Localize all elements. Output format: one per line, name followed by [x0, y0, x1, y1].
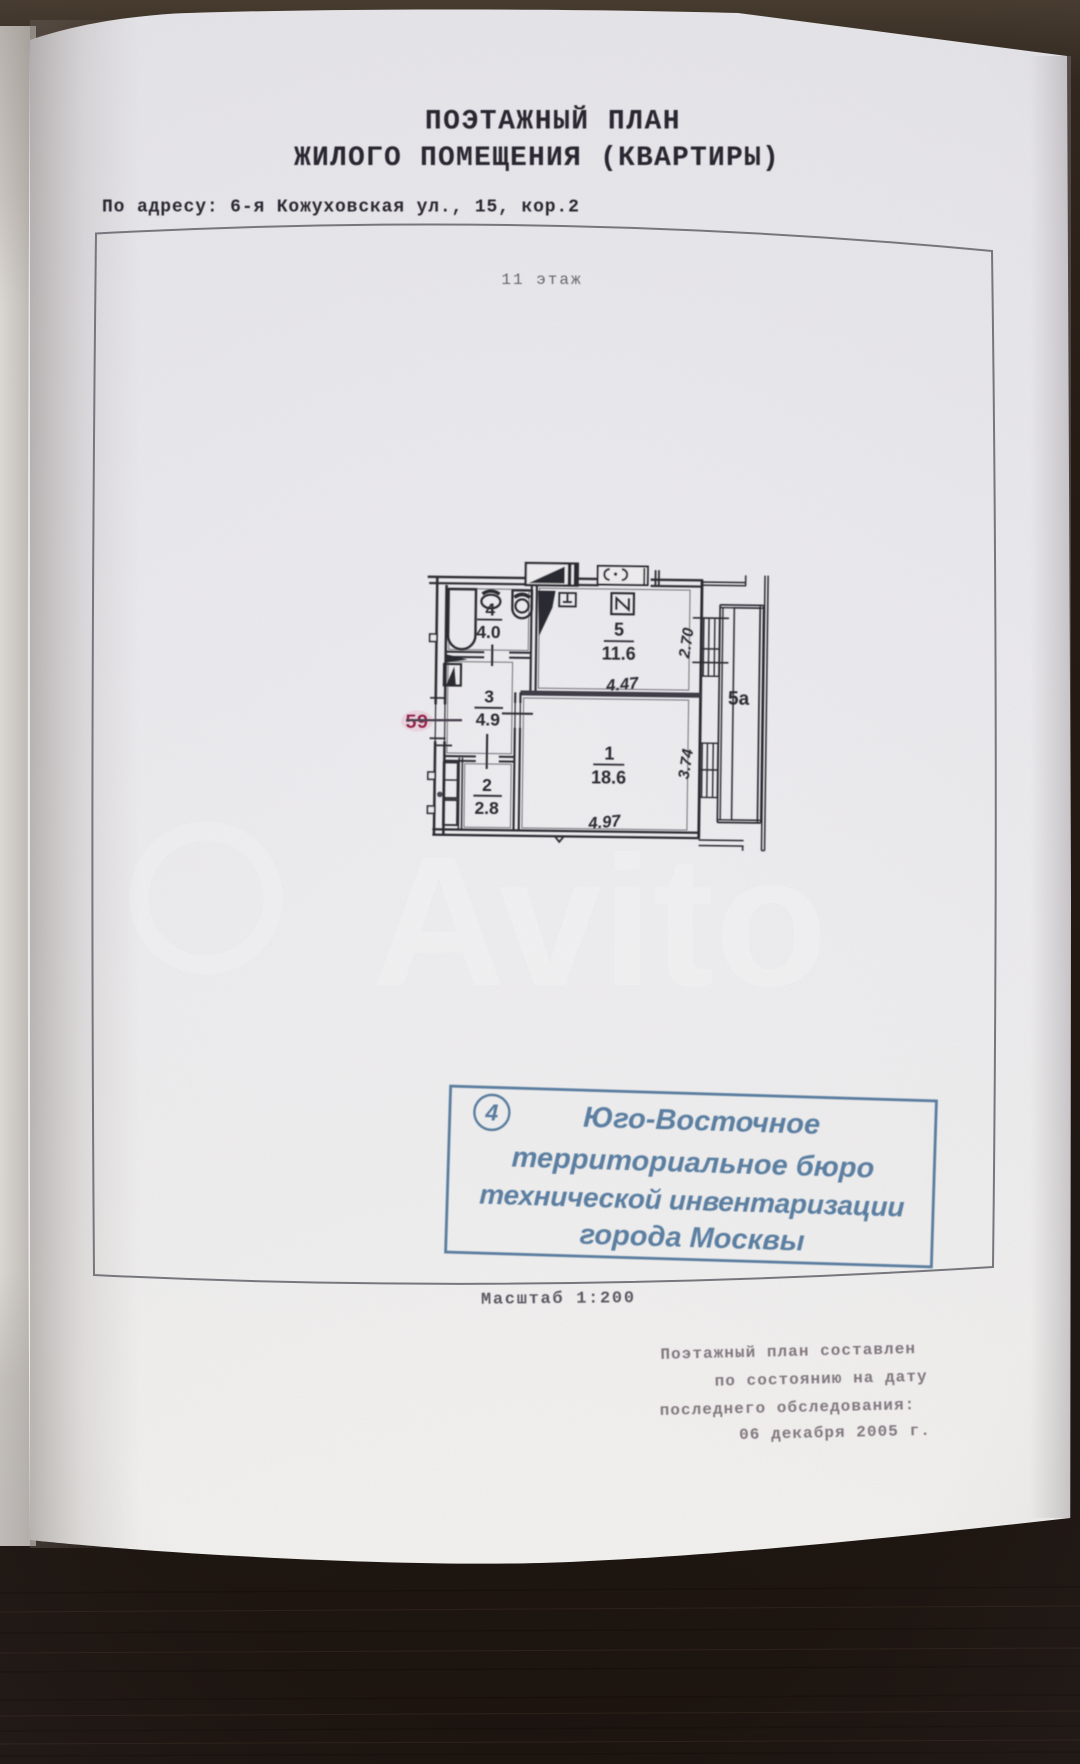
svg-text:2.8: 2.8: [474, 798, 499, 818]
svg-text:4: 4: [484, 1099, 499, 1125]
svg-text:ПОЭТАЖНЫЙ ПЛАН: ПОЭТАЖНЫЙ ПЛАН: [425, 106, 681, 138]
svg-text:5а: 5а: [728, 689, 750, 710]
svg-text:4.47: 4.47: [604, 674, 639, 695]
svg-text:5: 5: [614, 620, 624, 640]
svg-text:Avito: Avito: [372, 819, 828, 1025]
svg-text:11.6: 11.6: [602, 643, 636, 663]
svg-text:По адресу: 6-я Кожуховская ул.: По адресу: 6-я Кожуховская ул., 15, кор.…: [102, 198, 580, 218]
svg-text:59: 59: [405, 712, 428, 735]
svg-text:2: 2: [482, 775, 492, 795]
svg-text:ЖИЛОГО ПОМЕЩЕНИЯ (КВАРТИРЫ): ЖИЛОГО ПОМЕЩЕНИЯ (КВАРТИРЫ): [294, 143, 780, 174]
svg-text:1: 1: [604, 744, 614, 764]
svg-text:4.0: 4.0: [476, 622, 501, 642]
svg-text:4.9: 4.9: [476, 709, 501, 729]
svg-text:4: 4: [485, 599, 495, 619]
svg-text:11 этаж: 11 этаж: [501, 271, 582, 289]
svg-text:Масштаб 1:200: Масштаб 1:200: [481, 1289, 636, 1310]
svg-text:3: 3: [484, 686, 494, 706]
svg-text:18.6: 18.6: [591, 767, 626, 787]
